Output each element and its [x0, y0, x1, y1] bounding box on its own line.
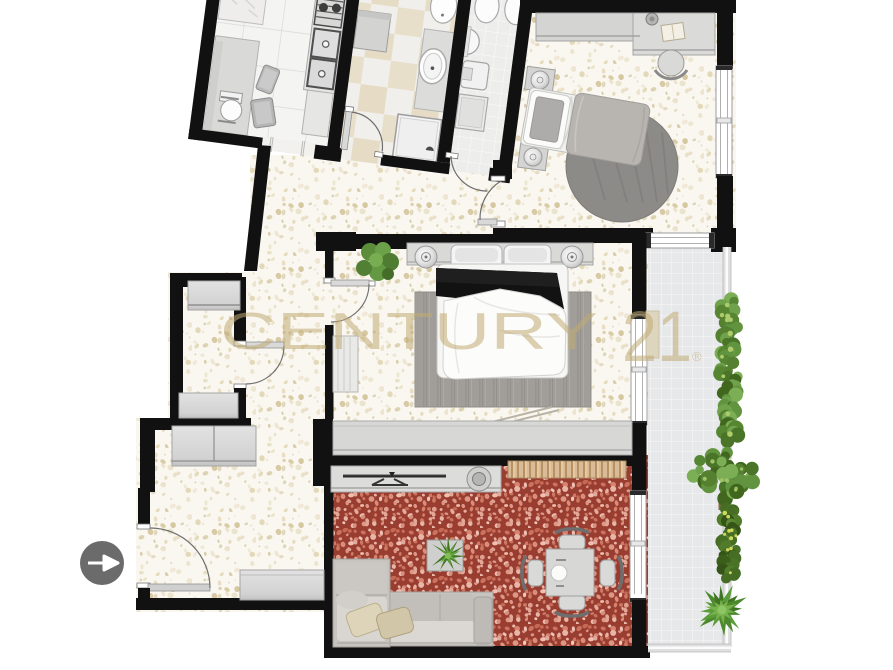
svg-text:®: ® [692, 349, 702, 364]
svg-text:21: 21 [622, 298, 692, 377]
svg-text:CENTURY: CENTURY [220, 303, 598, 361]
